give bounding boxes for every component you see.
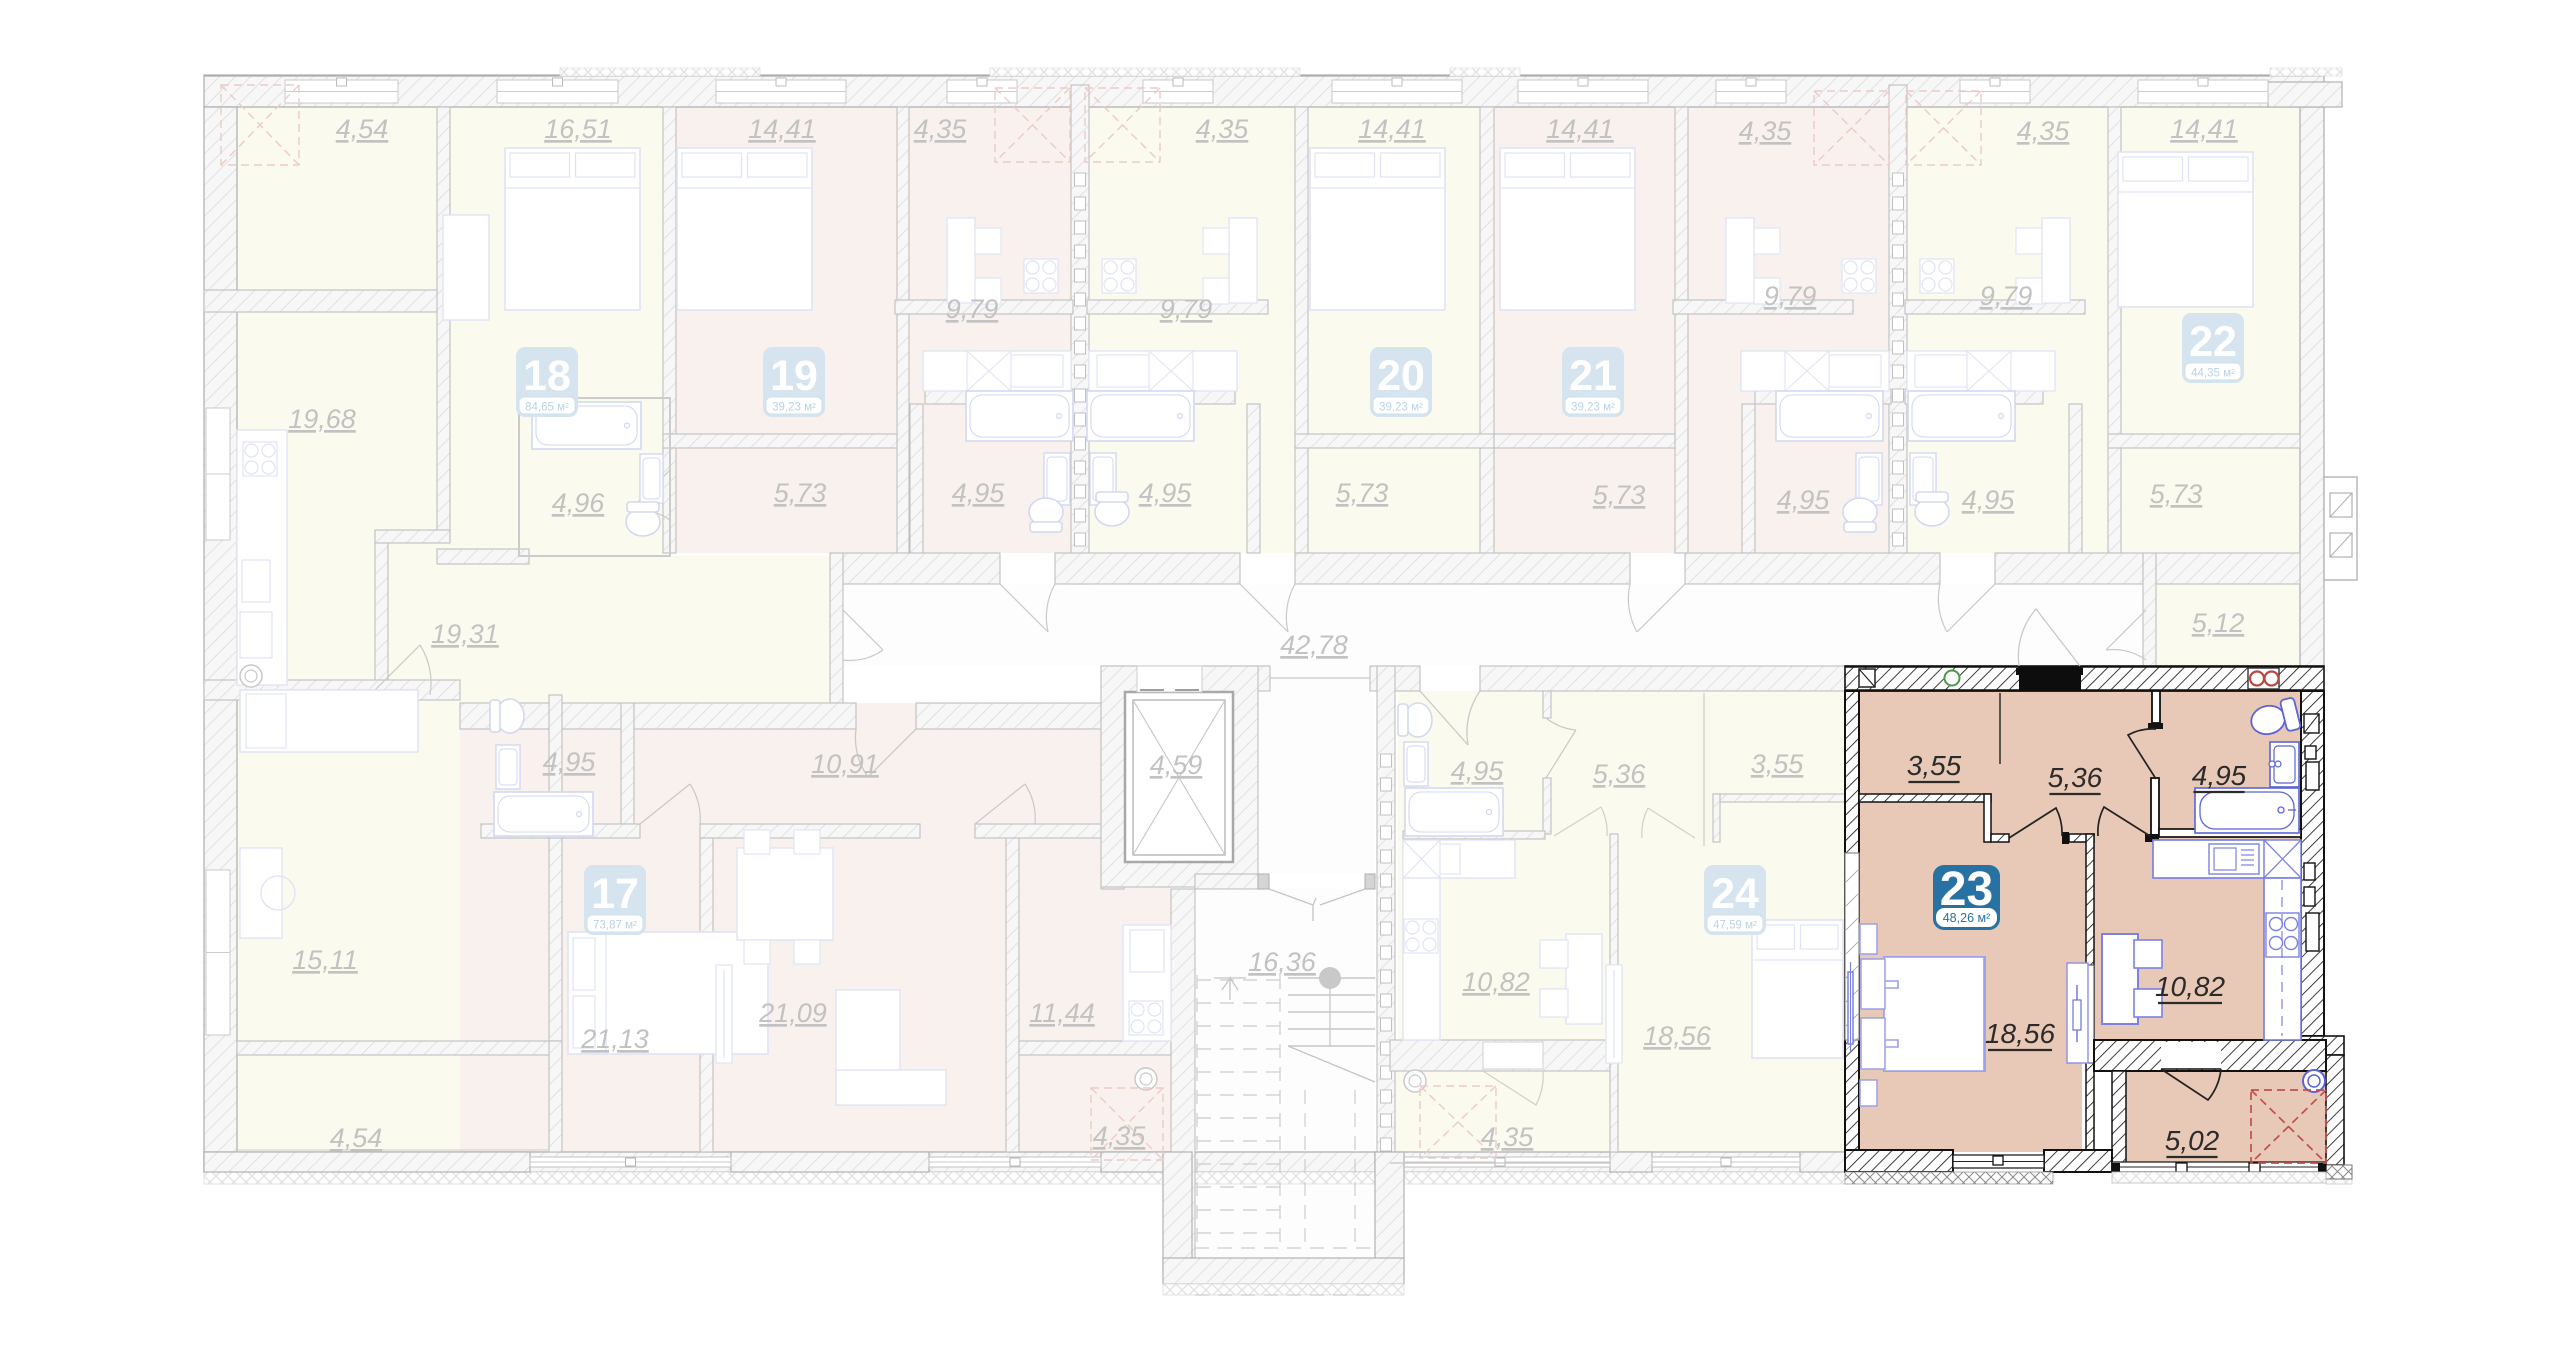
svg-text:15,11: 15,11 xyxy=(292,945,358,975)
svg-text:17: 17 xyxy=(591,870,639,918)
svg-text:4,96: 4,96 xyxy=(552,488,606,518)
svg-text:4,95: 4,95 xyxy=(1139,478,1193,508)
svg-text:4,54: 4,54 xyxy=(336,114,389,144)
svg-text:11,44: 11,44 xyxy=(1029,998,1095,1028)
svg-text:5,73: 5,73 xyxy=(1593,480,1646,510)
svg-text:3,55: 3,55 xyxy=(1751,749,1805,779)
svg-text:4,35: 4,35 xyxy=(1739,116,1793,146)
svg-text:4,95: 4,95 xyxy=(2192,760,2247,791)
svg-text:44,35 м²: 44,35 м² xyxy=(2191,368,2235,380)
svg-text:16,36: 16,36 xyxy=(1248,947,1317,977)
svg-text:14,41: 14,41 xyxy=(1358,114,1426,144)
svg-text:19,31: 19,31 xyxy=(431,619,499,649)
svg-text:5,02: 5,02 xyxy=(2165,1125,2220,1156)
svg-text:9,79: 9,79 xyxy=(946,294,999,324)
svg-text:4,95: 4,95 xyxy=(1451,756,1505,786)
svg-text:4,95: 4,95 xyxy=(543,747,597,777)
svg-text:39,23 м²: 39,23 м² xyxy=(772,402,816,414)
svg-text:14,41: 14,41 xyxy=(2170,114,2238,144)
svg-text:39,23 м²: 39,23 м² xyxy=(1379,402,1423,414)
svg-text:4,35: 4,35 xyxy=(1093,1121,1147,1151)
svg-text:4,95: 4,95 xyxy=(1962,485,2016,515)
svg-text:20: 20 xyxy=(1377,352,1425,400)
svg-text:14,41: 14,41 xyxy=(748,114,816,144)
svg-text:18,56: 18,56 xyxy=(1643,1021,1712,1051)
svg-text:19: 19 xyxy=(770,352,818,400)
svg-text:5,36: 5,36 xyxy=(2048,762,2103,793)
svg-text:5,36: 5,36 xyxy=(1593,759,1647,789)
svg-text:21,09: 21,09 xyxy=(758,998,827,1028)
svg-text:19,68: 19,68 xyxy=(288,404,356,434)
svg-text:42,78: 42,78 xyxy=(1280,630,1348,660)
svg-text:3,55: 3,55 xyxy=(1907,750,1962,781)
svg-text:18,56: 18,56 xyxy=(1985,1018,2055,1049)
svg-text:4,95: 4,95 xyxy=(952,478,1006,508)
svg-text:5,12: 5,12 xyxy=(2192,608,2245,638)
svg-text:5,73: 5,73 xyxy=(774,478,827,508)
svg-text:4,35: 4,35 xyxy=(1196,114,1250,144)
svg-text:10,82: 10,82 xyxy=(1462,967,1530,997)
svg-text:4,54: 4,54 xyxy=(330,1123,383,1153)
svg-text:21: 21 xyxy=(1569,352,1617,400)
svg-text:22: 22 xyxy=(2189,318,2237,366)
svg-text:39,23 м²: 39,23 м² xyxy=(1571,402,1615,414)
svg-text:48,26 м²: 48,26 м² xyxy=(1943,911,1991,925)
svg-text:84,65 м²: 84,65 м² xyxy=(525,402,569,414)
svg-text:9,79: 9,79 xyxy=(1160,294,1213,324)
svg-text:4,35: 4,35 xyxy=(2017,116,2071,146)
svg-text:5,73: 5,73 xyxy=(2150,479,2203,509)
svg-text:5,73: 5,73 xyxy=(1336,478,1389,508)
svg-text:23: 23 xyxy=(1940,863,1993,916)
svg-text:9,79: 9,79 xyxy=(1980,281,2033,311)
svg-text:10,82: 10,82 xyxy=(2155,971,2225,1002)
svg-text:14,41: 14,41 xyxy=(1546,114,1614,144)
svg-text:18: 18 xyxy=(523,352,571,400)
svg-text:24: 24 xyxy=(1711,870,1759,918)
svg-text:9,79: 9,79 xyxy=(1764,281,1817,311)
svg-text:4,59: 4,59 xyxy=(1150,750,1203,780)
svg-text:10,91: 10,91 xyxy=(811,749,879,779)
svg-text:47,59 м²: 47,59 м² xyxy=(1713,920,1757,932)
svg-text:21,13: 21,13 xyxy=(580,1024,649,1054)
svg-text:73,87 м²: 73,87 м² xyxy=(593,920,637,932)
svg-text:4,35: 4,35 xyxy=(1481,1122,1535,1152)
svg-text:4,95: 4,95 xyxy=(1777,485,1831,515)
svg-text:4,35: 4,35 xyxy=(914,114,968,144)
svg-text:16,51: 16,51 xyxy=(544,114,612,144)
